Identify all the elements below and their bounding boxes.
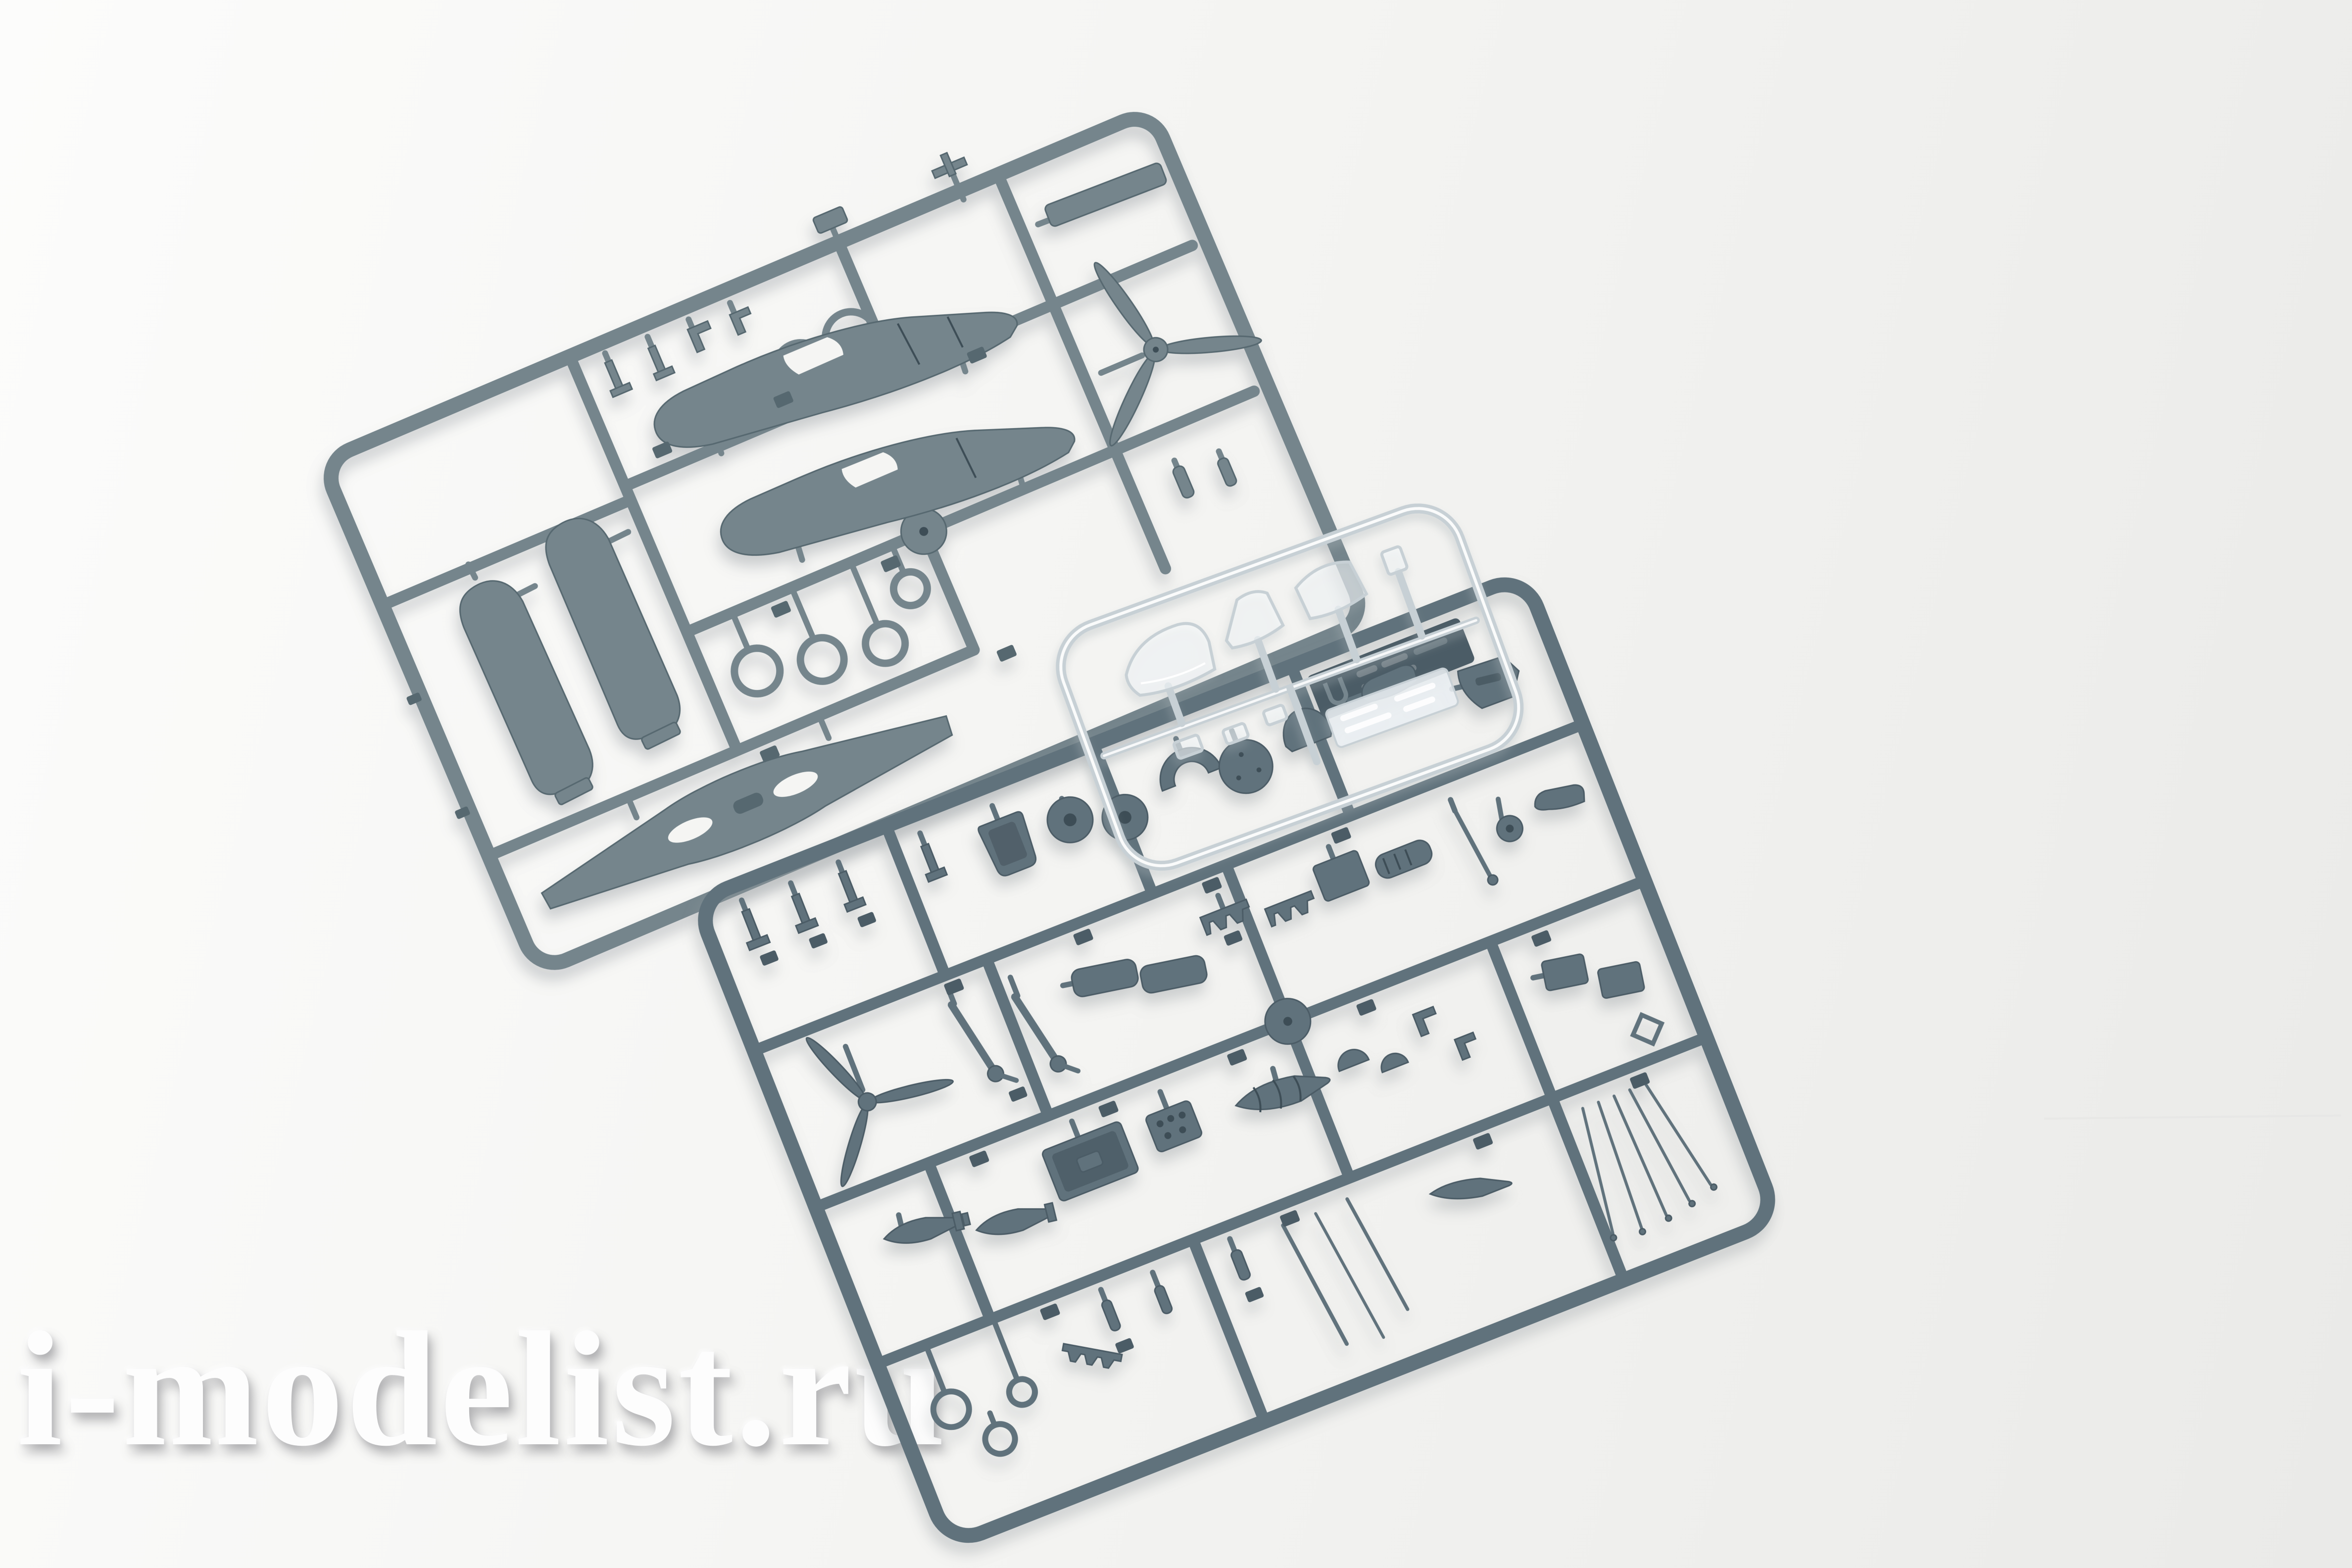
- small-lever-part: [732, 895, 779, 969]
- part-number-tab: [1073, 928, 1093, 946]
- small-cylinder-part: [1148, 1271, 1174, 1315]
- part-number-tab: [996, 644, 1018, 662]
- ring-part: [911, 1332, 1019, 1472]
- small-bracket-part: [726, 297, 757, 335]
- part-number-tab: [1472, 1132, 1493, 1150]
- small-bracket-part: [1455, 1032, 1481, 1060]
- gear-door-part: [1060, 958, 1139, 1000]
- wheel-well-insert-part: [1530, 954, 1589, 993]
- clear-small-part: [1263, 704, 1287, 726]
- saw-comb-part: [1061, 1344, 1122, 1370]
- sprue-gray-lower: [695, 575, 1778, 1546]
- wheel-part: [1040, 790, 1099, 849]
- sprue-b-runner: [889, 833, 945, 975]
- pilot-seat-part: [972, 797, 1041, 880]
- small-lever-part: [911, 830, 947, 882]
- flat-strip-part: [1033, 162, 1168, 232]
- part-number-tab: [1039, 1303, 1060, 1321]
- sprue-b-runner: [823, 883, 1638, 1205]
- dome-part: [1377, 1049, 1408, 1073]
- small-cylinder-part: [1225, 1235, 1265, 1303]
- small-bracket-part: [684, 313, 717, 352]
- small-lever-part: [596, 349, 632, 397]
- dome-part: [1333, 1045, 1369, 1071]
- part-number-tab: [1356, 999, 1376, 1017]
- small-lever-part: [781, 879, 828, 952]
- wheel-well-insert-part: [1597, 961, 1645, 999]
- bulkhead-part: [1308, 837, 1371, 902]
- part-number-tab: [1226, 1048, 1247, 1066]
- small-cylinder-part: [1094, 1286, 1134, 1354]
- antenna-loop-part: [983, 1318, 1039, 1409]
- instrument-panel-part: [1138, 1083, 1203, 1153]
- part-number-tab: [1531, 930, 1552, 947]
- part-number-tab: [969, 1150, 989, 1168]
- sprue-b-runner: [1193, 1239, 1262, 1415]
- small-cylinder-part: [1214, 449, 1238, 488]
- small-cylinder-part: [1169, 458, 1195, 499]
- diamond-frame-part: [1633, 1015, 1662, 1044]
- photo-stage: i-modelist.ru: [0, 0, 2352, 1568]
- intake-horn-part: [1532, 784, 1586, 813]
- small-lever-part: [829, 857, 877, 931]
- small-bracket-part: [1413, 1007, 1441, 1036]
- part-number-tab: [1331, 827, 1352, 844]
- sprue-b-runner: [929, 1163, 990, 1319]
- part-number-tab: [1098, 1100, 1119, 1118]
- sprues-photo: [0, 0, 2352, 1568]
- exhaust-stack-part: [1265, 891, 1318, 927]
- pitot-tube-fan: [1563, 1073, 1723, 1246]
- tail-wheel-part: [1486, 794, 1526, 845]
- part-number-tab: [771, 600, 792, 618]
- antenna-mast-part: [1451, 794, 1499, 888]
- oil-cooler-part: [1372, 837, 1435, 881]
- bomb-part: [974, 1201, 1057, 1241]
- gear-door-part: [1139, 954, 1209, 994]
- slim-tank-part: [1429, 1174, 1513, 1203]
- small-lever-part: [639, 333, 675, 381]
- thin-rod-part: [1283, 1193, 1414, 1357]
